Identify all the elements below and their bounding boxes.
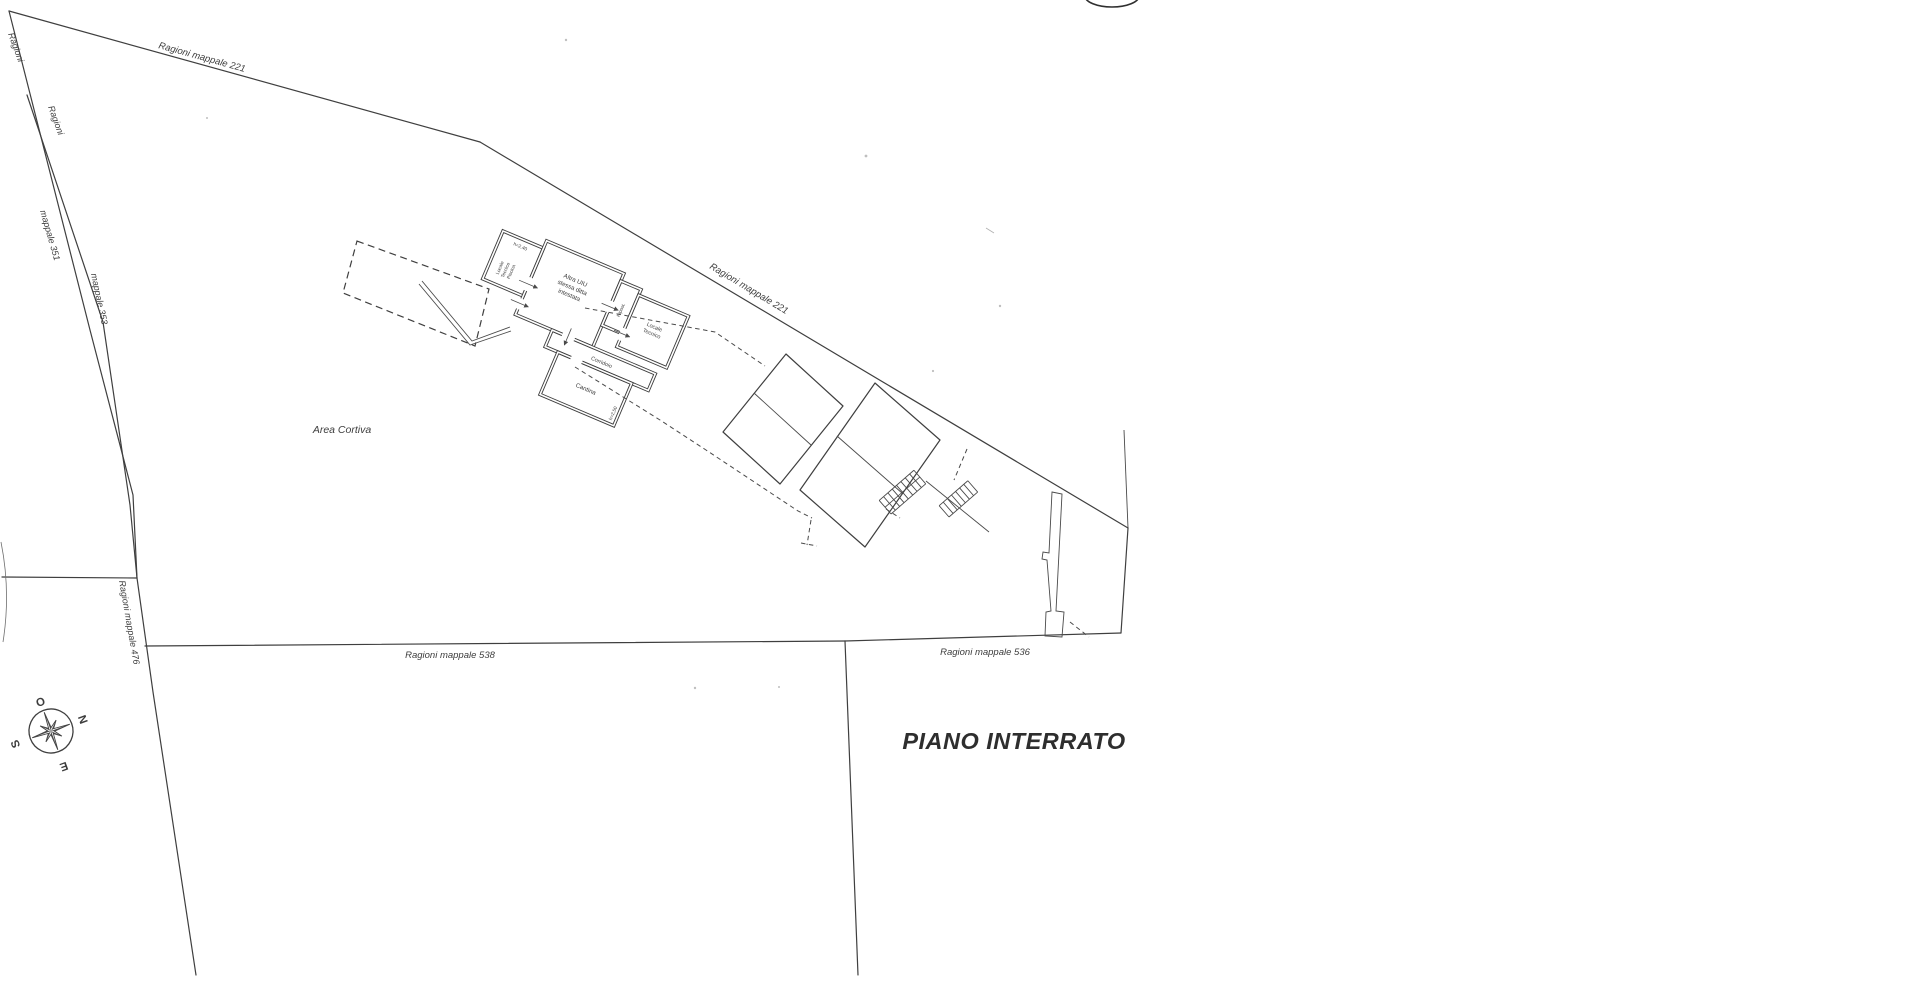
exterior-wall [419,281,511,345]
upper-buildings-outline [723,354,940,547]
door-opening [570,355,583,365]
label-area-cortiva: Area Cortiva [312,424,372,436]
compass-letter-south: S [9,738,23,750]
label-h240: h=2,40 [513,241,529,251]
roof-ridge-1 [754,393,811,445]
door-opening [515,298,525,310]
left-parcel-labels: Ragioni Ragioni mappale 351 mappale 353 … [6,31,142,665]
label-mappale-353: mappale 353 [89,272,110,325]
label-ragioni-2: Ragioni [46,104,66,137]
pergola-dashed-outline [343,241,489,346]
compass-letter-west: O [34,696,47,710]
boundary-diagonal-line-221 [480,142,1128,528]
door-opening [561,332,575,343]
boundary-left-line-2 [27,95,137,578]
compass-letter-east: E [58,759,70,773]
boundary-horizontal-line [2,577,137,578]
dashed-connections [575,308,1089,637]
compass-rose: O N E S [0,684,102,786]
ramp-strip [1042,492,1064,637]
compass-star-fill [25,705,76,756]
compass-circle [23,703,79,759]
label-mappale-221-top: Ragioni mappale 221 [157,40,246,75]
scan-stamp-arc [1085,0,1139,7]
label-ragioni-mappale-476: Ragioni mappale 476 [117,580,142,666]
boundary-top-line [9,11,480,142]
label-mappale-538: Ragioni mappale 538 [405,650,496,661]
site-plan-drawing: Ragioni Ragioni mappale 351 mappale 353 … [0,0,1920,989]
label-mappale-221-mid: Ragioni mappale 221 [707,261,790,317]
compass-letter-north: N [75,714,89,726]
floor-title: PIANO INTERRATO [902,728,1125,754]
door-opening [617,327,628,341]
boundary-right-edge [1121,528,1128,633]
boundary-right-tick [1124,430,1128,528]
stairs-1 [879,470,926,514]
stairs-2 [939,481,978,517]
label-cantina: Cantina [574,382,597,397]
stairs-rail-line [926,481,989,532]
label-mappale-536: Ragioni mappale 536 [940,647,1031,658]
boundary-divider-line [845,641,858,975]
roof-ridge-2 [837,436,902,493]
boundary-left-arc [1,542,7,642]
compass-star-outline [25,705,76,756]
parcel-boundaries [1,11,1128,975]
boundary-left-line-1 [9,11,196,975]
label-mappale-351: mappale 351 [38,209,62,262]
scanned-floor-plan-page: Ragioni Ragioni mappale 351 mappale 353 … [0,0,1920,989]
boundary-bottom-line-538 [145,641,845,646]
boundary-bottom-line-536 [845,633,1121,641]
label-ragioni-1: Ragioni [6,31,26,64]
building-plan: h=2,40 Locale Tecnico Piscina Altra UIU … [450,224,694,436]
